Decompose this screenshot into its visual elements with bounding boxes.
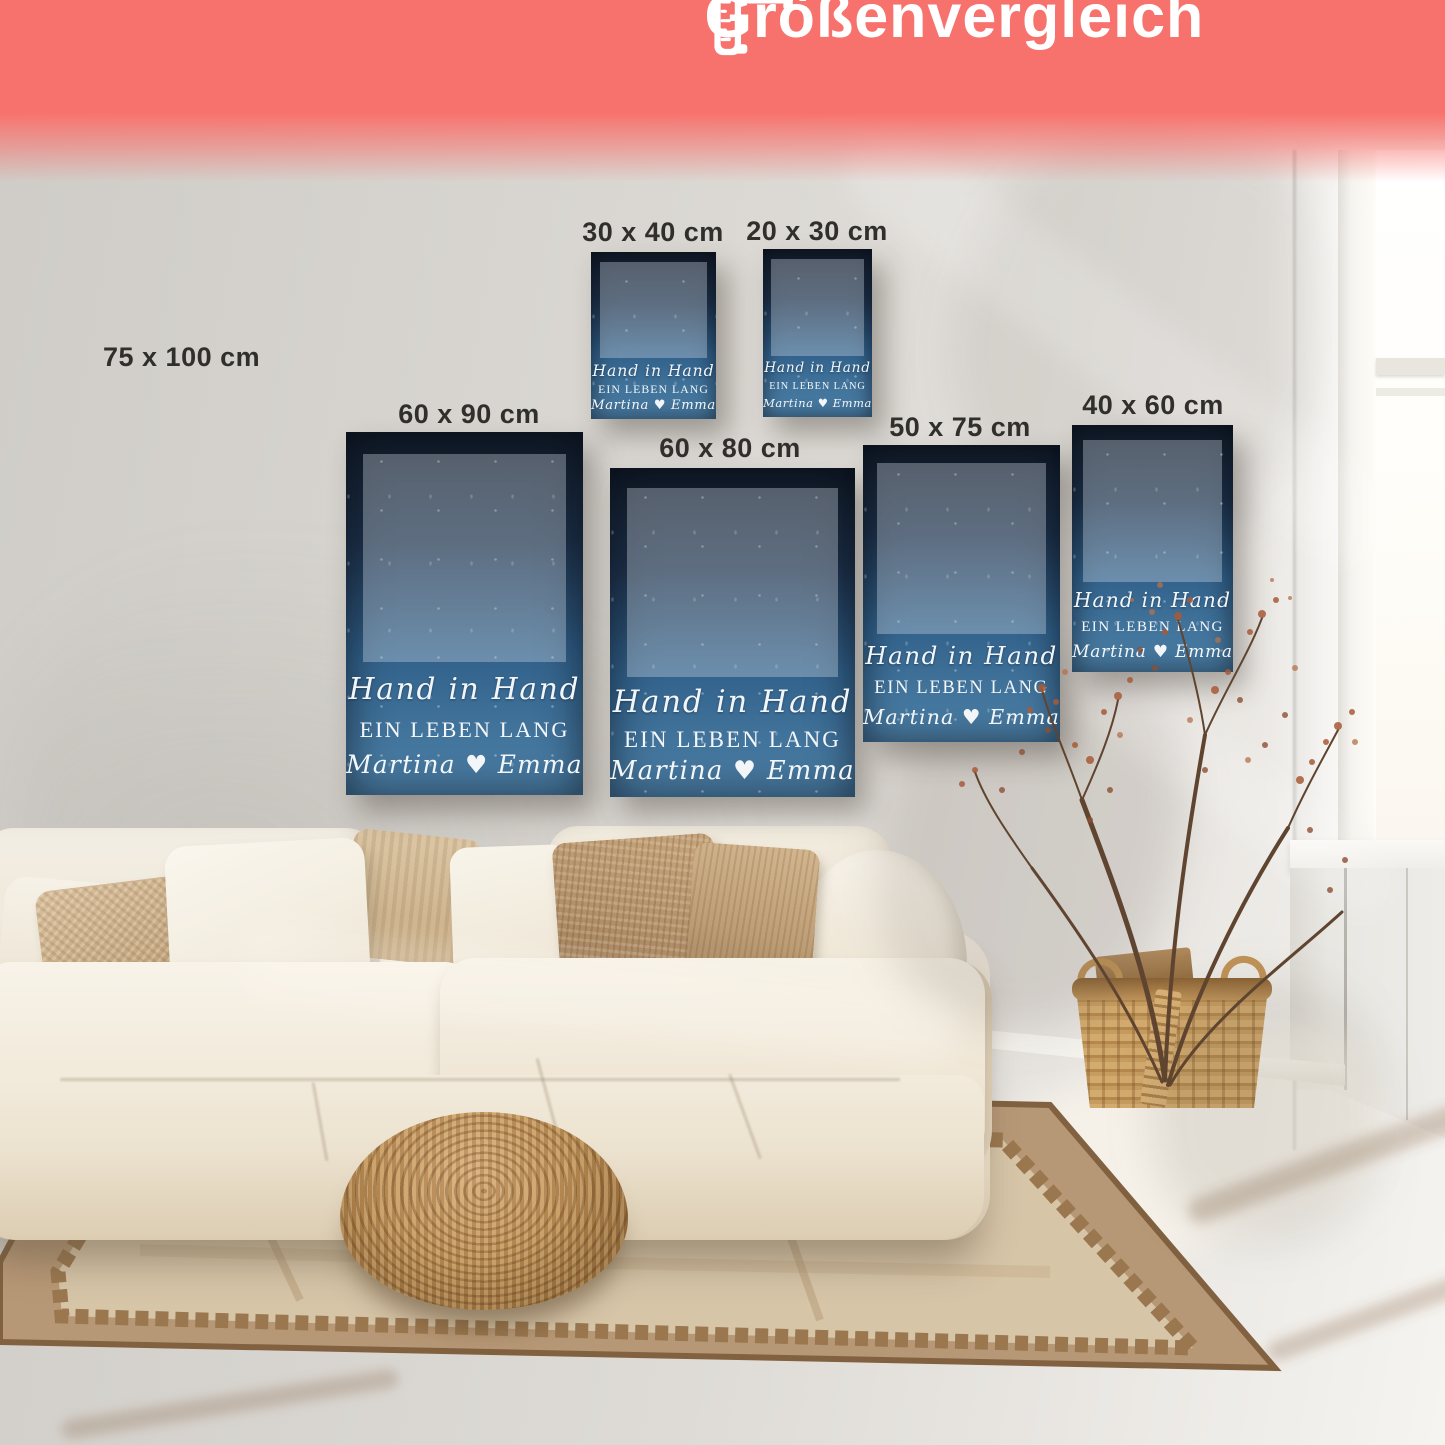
banner: Größenvergleich (0, 0, 1445, 182)
banner-title: Größenvergleich (705, 0, 1205, 51)
size-comparison-graphic: 75 x 100 cm 30 x 40 cm 20 x 30 cm 60 x 9… (0, 0, 1445, 1445)
dried-plant (0, 0, 1445, 1445)
